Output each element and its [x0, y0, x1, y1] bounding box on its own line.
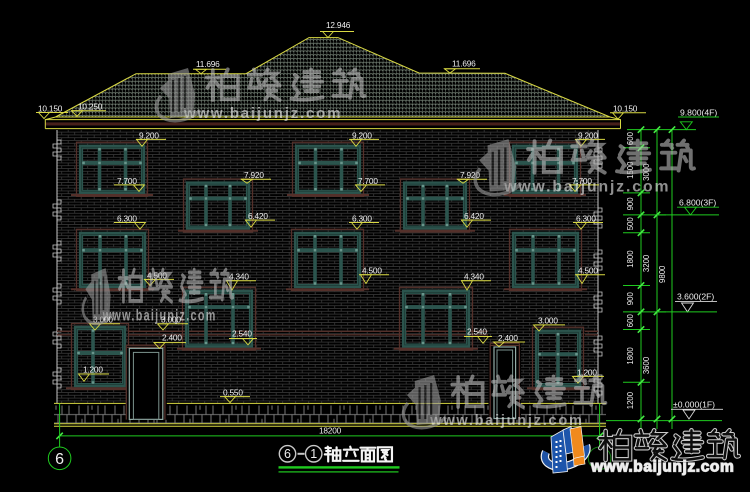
- svg-text:1: 1: [310, 447, 317, 461]
- svg-text:4.500: 4.500: [578, 266, 598, 276]
- svg-text:9.200: 9.200: [578, 130, 598, 140]
- svg-text:6: 6: [284, 447, 291, 461]
- svg-text:12.946: 12.946: [326, 20, 351, 30]
- svg-text:6.800(3F): 6.800(3F): [679, 197, 716, 207]
- svg-text:900: 900: [626, 197, 635, 211]
- svg-text:6.300: 6.300: [352, 213, 372, 223]
- svg-text:7.920: 7.920: [244, 170, 264, 180]
- svg-text:2.400: 2.400: [162, 332, 182, 342]
- svg-text:±0.000(1F): ±0.000(1F): [673, 399, 715, 409]
- svg-text:7.700: 7.700: [117, 176, 137, 186]
- svg-text:4.340: 4.340: [464, 272, 484, 282]
- svg-text:3.600(2F): 3.600(2F): [677, 292, 714, 302]
- svg-text:6.300: 6.300: [117, 213, 137, 223]
- svg-text:4.500: 4.500: [362, 266, 382, 276]
- svg-text:6.420: 6.420: [248, 211, 268, 221]
- svg-text:7.700: 7.700: [358, 176, 378, 186]
- svg-text:2.540: 2.540: [232, 328, 252, 338]
- svg-text:3600: 3600: [642, 356, 651, 374]
- svg-text:900: 900: [626, 292, 635, 306]
- svg-text:2.400: 2.400: [498, 333, 518, 343]
- svg-text:500: 500: [626, 217, 635, 231]
- svg-text:1200: 1200: [626, 391, 635, 409]
- svg-text:1800: 1800: [626, 347, 635, 365]
- svg-text:2.540: 2.540: [467, 326, 487, 336]
- svg-text:4.340: 4.340: [229, 272, 249, 282]
- svg-text:11.696: 11.696: [452, 59, 476, 69]
- svg-text:9.800(4F): 9.800(4F): [680, 107, 717, 117]
- svg-text:10.150: 10.150: [38, 103, 63, 113]
- svg-text:6.300: 6.300: [576, 213, 596, 223]
- svg-text:10.150: 10.150: [613, 104, 638, 114]
- svg-text:6: 6: [55, 451, 64, 468]
- svg-text:1800: 1800: [626, 250, 635, 268]
- svg-text:6.420: 6.420: [464, 211, 484, 221]
- svg-text:600: 600: [626, 314, 635, 328]
- svg-text:0.550: 0.550: [223, 387, 243, 397]
- svg-text:11.696: 11.696: [196, 59, 220, 69]
- svg-text:9800: 9800: [658, 265, 667, 283]
- svg-text:3.000: 3.000: [538, 315, 558, 325]
- svg-text:9.200: 9.200: [139, 130, 159, 140]
- svg-text:www.baijunjz.com: www.baijunjz.com: [590, 459, 734, 476]
- svg-text:18200: 18200: [319, 426, 342, 436]
- svg-text:1.200: 1.200: [83, 365, 103, 375]
- svg-text:10.250: 10.250: [78, 102, 103, 112]
- svg-text:3200: 3200: [642, 254, 651, 272]
- svg-text:9.200: 9.200: [352, 130, 372, 140]
